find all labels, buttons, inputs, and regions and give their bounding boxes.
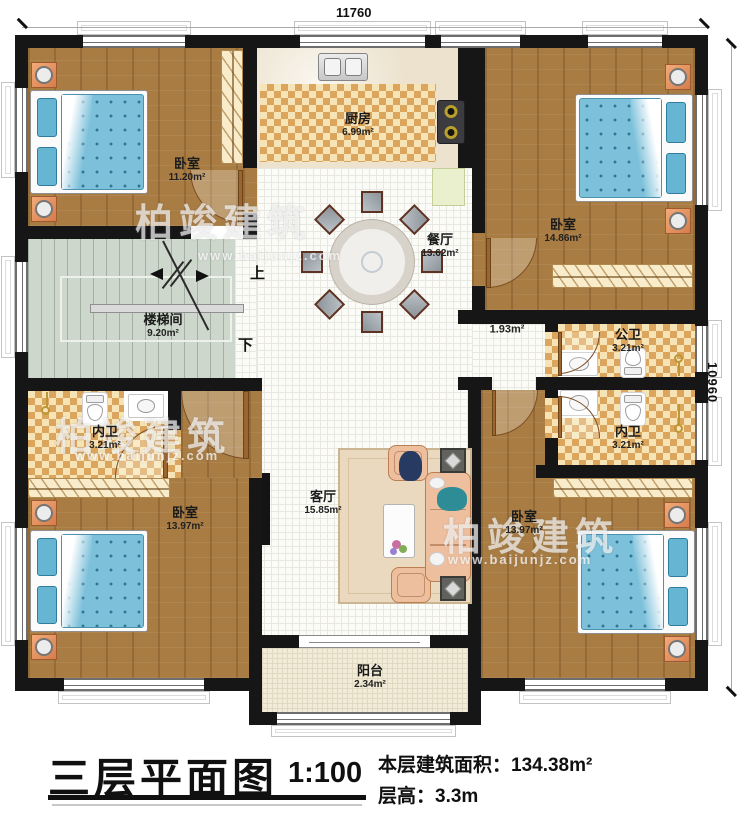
bed-quilt — [61, 534, 144, 628]
window-sill — [1, 256, 15, 358]
dining-chair — [361, 191, 383, 213]
bed-cushion — [668, 538, 688, 577]
room-label-bedroom-br: 卧室 13.97m² — [505, 509, 542, 537]
wardrobe — [28, 478, 170, 498]
room-label-dining: 餐厅 13.62m² — [421, 232, 458, 260]
floor-height-value: 3.3m — [435, 786, 478, 807]
dining-chair — [314, 289, 345, 320]
window-sill — [77, 21, 191, 35]
door-leaf — [243, 391, 249, 459]
wardrobe — [221, 50, 243, 164]
window — [277, 712, 450, 725]
bed — [575, 94, 693, 202]
window — [15, 528, 28, 640]
person — [399, 451, 422, 481]
wall — [545, 324, 558, 332]
nightstand — [31, 196, 57, 222]
bed — [30, 90, 148, 194]
window-sill — [582, 21, 668, 35]
window-sill — [519, 691, 671, 704]
toilet-tank — [624, 367, 642, 375]
stair-down-label: 下 — [238, 334, 253, 355]
window — [525, 678, 665, 691]
door-leaf — [558, 332, 562, 376]
flower — [399, 545, 407, 553]
bed-cushion — [666, 102, 686, 142]
window — [300, 35, 425, 48]
window-sill — [435, 21, 526, 35]
watermark-brand: 柏竣建筑 — [135, 192, 311, 247]
window-sill — [708, 522, 722, 646]
wardrobe — [552, 264, 693, 288]
room-label-bath-right: 内卫 3.21m² — [612, 424, 644, 452]
balcony-slide-door — [299, 635, 430, 648]
room-label-bath-left: 内卫 3.21m² — [89, 424, 121, 452]
floor-doorway — [249, 391, 262, 478]
bed-cushion — [37, 538, 57, 576]
sink-basin — [324, 58, 341, 76]
room-label-bath-public: 公卫 3.21m² — [612, 327, 644, 355]
window-sill — [1, 82, 15, 178]
room-label-kitchen: 厨房 6.99m² — [342, 111, 374, 139]
towel-hook — [41, 406, 50, 415]
door-leaf — [492, 390, 496, 436]
bed — [30, 530, 148, 632]
window-sill — [1, 522, 15, 646]
wall — [249, 635, 299, 648]
window — [83, 35, 185, 48]
nightstand — [664, 502, 690, 528]
stove-burner — [445, 105, 458, 118]
floor-doorway — [472, 233, 485, 286]
stair-arrow — [196, 270, 209, 282]
nightstand — [664, 636, 690, 662]
nightstand — [31, 634, 57, 660]
wall — [545, 390, 558, 398]
window-sill — [271, 725, 456, 737]
room-label-bedroom-tl: 卧室 11.20m² — [169, 156, 206, 184]
bed-quilt — [579, 98, 662, 198]
wall — [545, 438, 558, 465]
toilet — [620, 392, 646, 426]
dining-chair — [399, 289, 430, 320]
dining-table — [330, 220, 414, 304]
wall — [430, 635, 481, 648]
title-underline — [48, 795, 366, 800]
room-label-living: 客厅 15.85m² — [304, 489, 341, 517]
nightstand — [665, 64, 691, 90]
window-sill — [708, 397, 722, 466]
stove — [437, 100, 465, 144]
wall — [472, 286, 485, 310]
bed-cushion — [37, 147, 57, 186]
plan-scale: 1:100 — [288, 757, 362, 790]
wall — [249, 712, 277, 725]
room-label-balcony: 阳台 2.34m² — [354, 663, 386, 691]
nightstand — [665, 208, 691, 234]
window-sill — [58, 691, 210, 704]
window — [441, 35, 520, 48]
room-label-bedroom-bl: 卧室 13.97m² — [166, 505, 203, 533]
title-underline-light — [52, 804, 362, 806]
side-table — [440, 448, 466, 473]
room-label-hallway: 1.93m² — [490, 323, 525, 336]
dining-chair — [314, 204, 345, 235]
bed-cushion — [668, 587, 688, 626]
window-sill — [708, 89, 722, 211]
window — [695, 326, 708, 372]
window-sill — [294, 21, 431, 35]
stair-arrow — [150, 268, 163, 280]
nightstand — [31, 62, 57, 88]
watermark-url: www.baijunjz.com — [198, 248, 342, 263]
towel-hook — [678, 404, 680, 426]
window — [695, 95, 708, 205]
sink-basin — [345, 58, 362, 76]
sofa-pillow — [429, 477, 445, 489]
room-label-bedroom-tr: 卧室 14.86m² — [544, 217, 581, 245]
bed-cushion — [37, 98, 57, 137]
toilet-bowl — [625, 404, 641, 421]
tv — [262, 473, 270, 545]
wardrobe — [553, 478, 693, 498]
door-leaf — [486, 238, 491, 288]
wall — [458, 377, 492, 390]
watermark-url: www.baijunjz.com — [448, 552, 592, 567]
side-table — [440, 576, 466, 601]
nightstand — [31, 500, 57, 526]
bed-quilt — [61, 94, 144, 190]
wall — [450, 712, 481, 725]
towel-hook — [678, 362, 680, 376]
bed-cushion — [37, 586, 57, 624]
dimension-line-top — [22, 27, 706, 28]
floor-area-label: 本层建筑面积： — [378, 755, 511, 776]
room-label-stairwell: 楼梯间 9.20m² — [143, 312, 182, 340]
window — [695, 528, 708, 640]
door-leaf — [558, 396, 562, 438]
dimension-line-right — [731, 45, 732, 693]
stair-up-label: 上 — [250, 262, 265, 283]
toilet-tank — [86, 395, 104, 403]
floor-doorway — [545, 398, 558, 438]
floor-area-info: 本层建筑面积：134.38m² — [378, 750, 592, 777]
wall — [458, 310, 708, 324]
flower — [390, 548, 397, 555]
window — [695, 403, 708, 460]
dining-chair — [361, 311, 383, 333]
wall — [536, 465, 708, 478]
window — [15, 262, 28, 352]
bed-cushion — [666, 153, 686, 193]
towel-hook — [674, 424, 683, 433]
dining-chair — [399, 204, 430, 235]
wall — [536, 377, 708, 390]
window — [588, 35, 662, 48]
dimension-width: 11760 — [336, 5, 371, 20]
floor-area-value: 134.38m² — [511, 755, 592, 776]
wall — [472, 48, 485, 233]
floor-height-info: 层高：3.3m — [378, 781, 478, 808]
kitchen-sink — [318, 53, 368, 81]
toilet-tank — [624, 395, 642, 403]
floor-height-label: 层高： — [378, 786, 435, 807]
wall — [249, 478, 262, 725]
wall — [15, 378, 262, 391]
window — [15, 88, 28, 172]
wall — [243, 48, 257, 168]
floor-plan-canvas: 11760 10960 — [0, 0, 750, 824]
window — [64, 678, 204, 691]
stove-burner — [445, 126, 458, 139]
